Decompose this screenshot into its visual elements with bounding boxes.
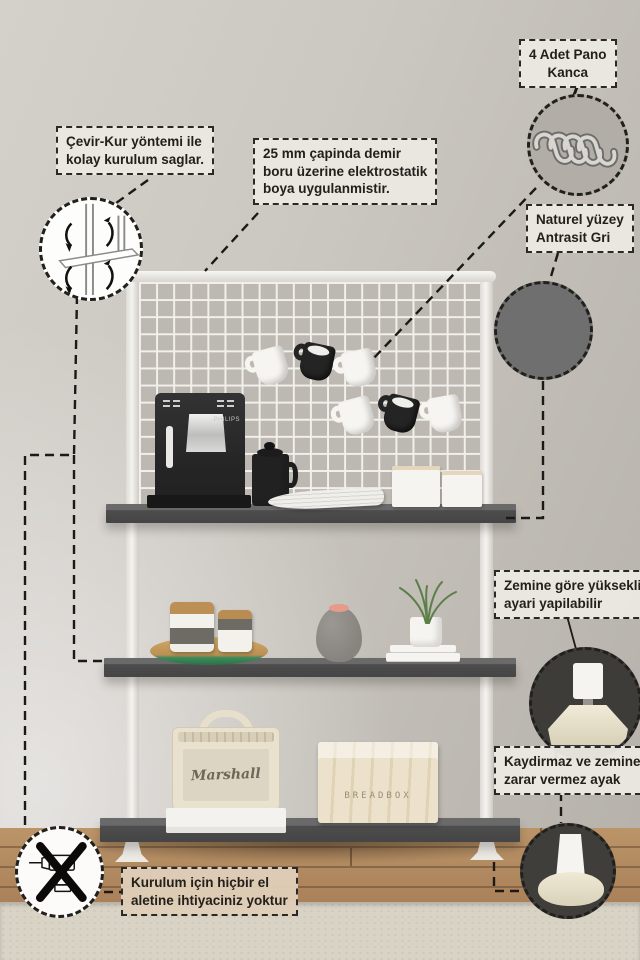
storage-box [442, 471, 482, 507]
vase-pink-lid [329, 604, 349, 612]
crate-stencil-label: BREADBOX [344, 791, 411, 801]
hanging-mug-white [426, 393, 464, 434]
breadbox-crate: BREADBOX [318, 742, 438, 823]
storage-box [392, 466, 440, 507]
adjustable-foot-icon [573, 663, 603, 699]
right-pole [480, 271, 493, 843]
canister-large [170, 602, 214, 652]
steam-wand [166, 426, 173, 468]
top-bar [124, 271, 496, 282]
speaker-logo: Marshall [191, 766, 261, 784]
gray-vase [316, 607, 362, 662]
callout-foot-safe: Kaydirmaz ve zemine zarar vermez ayak [494, 746, 640, 795]
speaker-controls [178, 732, 274, 742]
twist-install-circle [39, 197, 143, 301]
coffee-machine-brand: PHILIPS [213, 417, 240, 423]
adjustable-foot-circle [529, 647, 640, 760]
anthracite-swatch-circle [494, 281, 593, 380]
no-drill-icon [18, 829, 101, 915]
callout-pipe-paint: 25 mm çapinda demir boru üzerine elektro… [253, 138, 437, 205]
callout-panel-hooks: 4 Adet Pano Kanca [519, 39, 617, 88]
floor-safe-foot-circle [520, 823, 616, 919]
hooks-icon [530, 97, 626, 193]
speaker-base-book [166, 808, 286, 833]
callout-no-tools: Kurulum için hiçbir el aletine ihtiyacin… [121, 867, 298, 916]
book-stack [386, 645, 460, 661]
product-infographic: PHILIPS Marshall BREADBOX [0, 0, 640, 960]
callout-surface: Naturel yüzey Antrasit Gri [526, 204, 634, 253]
twist-icon [42, 200, 140, 298]
callout-height-adjust: Zemine göre yükseklik ayari yapilabilir [494, 570, 640, 619]
green-plant [392, 578, 462, 624]
espresso-machine: PHILIPS [155, 393, 245, 505]
panel-hooks-circle [527, 94, 629, 196]
canister-small [218, 610, 252, 652]
speaker-grille: Marshall [180, 746, 272, 804]
left-pole [126, 271, 139, 843]
callout-easy-install: Çevir-Kur yöntemi ile kolay kurulum sagl… [56, 126, 214, 175]
marshall-speaker: Marshall [172, 710, 280, 824]
no-tools-circle [15, 826, 104, 918]
shelf-bottom [100, 818, 520, 842]
